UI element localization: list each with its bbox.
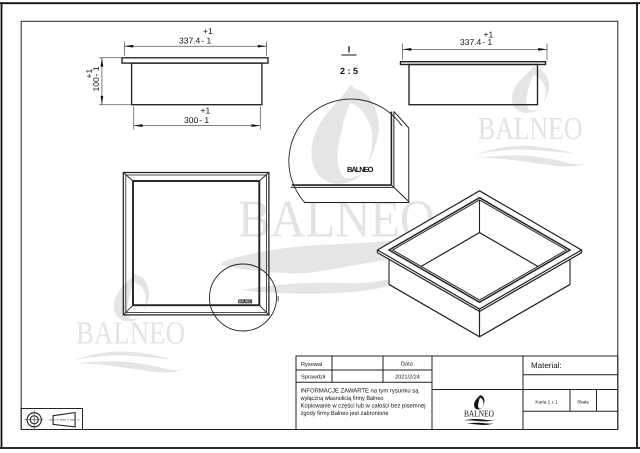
svg-text:BALNEO: BALNEO [478,110,583,146]
svg-text:BALNEO: BALNEO [76,315,185,351]
svg-text:+1: +1 [203,26,213,36]
svg-text:Karta 1 z 1: Karta 1 z 1 [535,400,558,405]
svg-text:Data: Data [401,361,414,367]
svg-text:Material:: Material: [531,361,562,370]
svg-text:wyłączną własnolicią firmy Bal: wyłączną własnolicią firmy Balneo [300,395,384,402]
svg-text:BALNEO: BALNEO [239,300,252,304]
svg-text:Rysował: Rysował [301,361,323,368]
svg-text:BALNEO: BALNEO [347,165,374,174]
svg-text:I: I [277,295,279,304]
svg-text:+1: +1 [84,69,94,79]
svg-text:Skala: Skala [577,400,589,405]
svg-text:Kopiowanie w części lub w cało: Kopiowanie w części lub w całości bez pi… [301,403,426,410]
svg-text:BALNEO: BALNEO [464,409,494,419]
svg-text:INFORMACJE ZAWARTE na tym rysu: INFORMACJE ZAWARTE na tym rysunku są [301,388,420,395]
svg-text:+1: +1 [484,29,494,39]
svg-text:300- 1: 300- 1 [184,115,209,125]
svg-text:Sprawdził: Sprawdził [301,373,326,380]
svg-text:2021/2/24: 2021/2/24 [395,373,420,380]
svg-text:337.4- 1: 337.4- 1 [179,36,211,46]
svg-text:zgody firmy Balneo jest zabron: zgody firmy Balneo jest zabronione [301,410,390,417]
svg-text:+1: +1 [201,106,211,116]
svg-text:2 : 5: 2 : 5 [340,66,358,76]
svg-text:I: I [348,45,351,55]
